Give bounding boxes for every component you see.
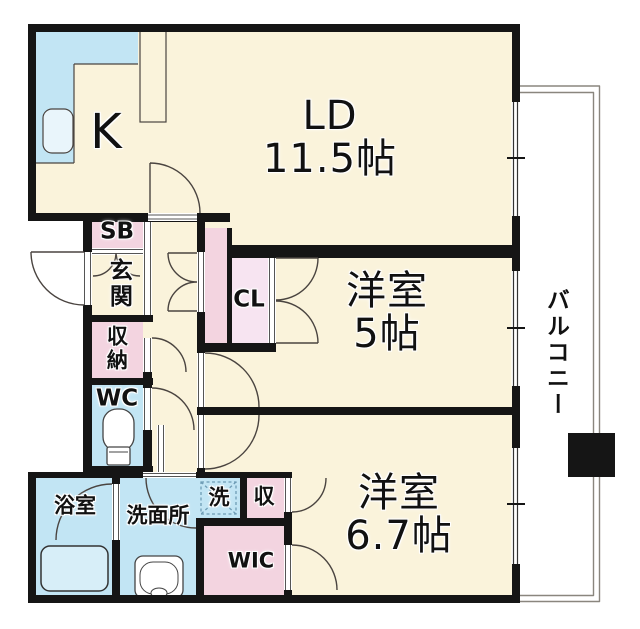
room-label-bedroom-5: 洋室 5帖 — [346, 270, 428, 356]
room-label-bedroom-6-7: 洋室 6.7帖 — [345, 472, 453, 558]
entrance-alcove-exterior — [0, 221, 91, 472]
wash-basin — [135, 556, 183, 598]
bedroom-5-size: 5帖 — [346, 313, 428, 356]
bedroom-5-name: 洋室 — [346, 270, 428, 313]
balcony-partition — [568, 433, 615, 477]
living-dining-size: 11.5帖 — [263, 138, 397, 181]
label-washer-space: 洗 — [209, 487, 230, 510]
label-walk-in-closet: WIC — [228, 550, 274, 573]
bathtub — [41, 546, 108, 591]
living-dining-name: LD — [263, 95, 397, 138]
room-label-washroom: 洗面所 — [127, 505, 190, 528]
room-label-living-dining: LD 11.5帖 — [263, 95, 397, 181]
label-closet: CL — [233, 288, 265, 313]
label-shoe-box: SB — [100, 220, 134, 245]
kitchen-sink — [43, 109, 73, 153]
bedroom-6-7-size: 6.7帖 — [345, 515, 453, 558]
room-label-toilet: WC — [96, 387, 138, 412]
room-label-kitchen: K — [90, 107, 121, 159]
floorplan: K LD 11.5帖 洋室 5帖 洋室 6.7帖 バルコニー SB 玄関 収納 … — [0, 0, 640, 629]
bedroom-6-7-name: 洋室 — [345, 472, 453, 515]
room-label-entrance: 玄関 — [106, 258, 131, 310]
room-label-bathroom: 浴室 — [54, 495, 96, 518]
room-label-hall-storage: 収納 — [105, 325, 128, 373]
label-storage-small: 収 — [254, 486, 275, 509]
room-label-balcony: バルコニー — [543, 288, 568, 418]
toilet-fixture — [103, 409, 134, 465]
